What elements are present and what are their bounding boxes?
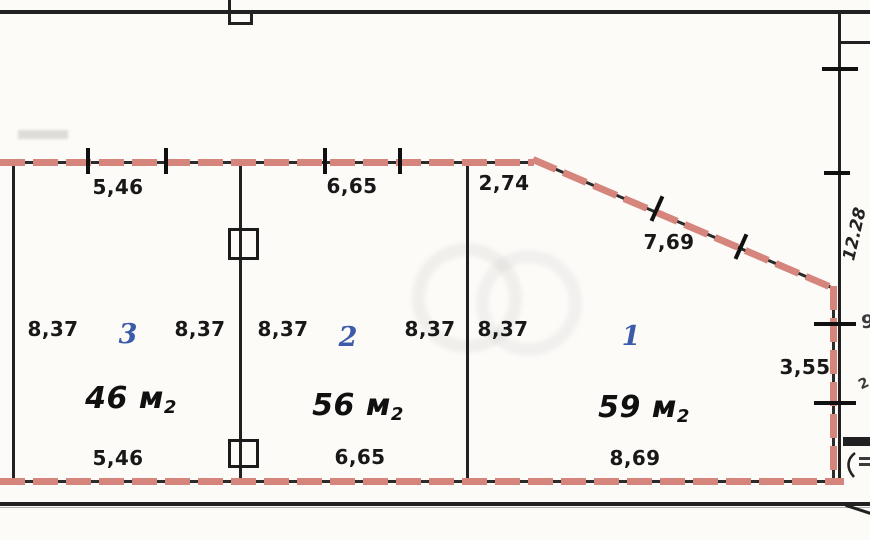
dim-right-height: 12.28 bbox=[839, 206, 870, 263]
dim-width: 8,37 bbox=[405, 317, 456, 341]
bottom-outer-wall bbox=[0, 502, 870, 506]
dim-bottom: 5,46 bbox=[93, 446, 144, 470]
room-1-area: 59 м2 bbox=[598, 390, 690, 427]
dim-width: 8,37 bbox=[28, 317, 79, 341]
room-2-area: 56 м2 bbox=[312, 388, 404, 425]
door-swing-icon bbox=[844, 451, 860, 479]
dim-top-left: 5,46 bbox=[93, 175, 144, 199]
tick bbox=[323, 148, 327, 174]
right-stub-wall bbox=[840, 41, 870, 44]
floor-plan: 5,46 6,65 2,74 7,69 8,37 8,37 8,37 8,37 … bbox=[0, 0, 870, 540]
tick bbox=[164, 148, 168, 174]
dim-right-segment: 3,55 bbox=[780, 355, 831, 379]
room-2-number: 2 bbox=[339, 322, 358, 353]
room-3-number: 3 bbox=[119, 319, 138, 350]
dim-top-corner: 2,74 bbox=[479, 171, 530, 195]
left-boundary-line bbox=[12, 162, 15, 480]
dim-bottom: 8,69 bbox=[610, 446, 661, 470]
edge-fragment-upper: 9 bbox=[861, 311, 870, 333]
red-wall-right bbox=[829, 286, 838, 481]
room-1-number: 1 bbox=[622, 321, 641, 352]
top-outer-wall bbox=[0, 10, 870, 14]
right-boundary-line bbox=[838, 10, 841, 483]
dim-width: 8,37 bbox=[175, 317, 226, 341]
edge-hatch-bar bbox=[843, 437, 870, 446]
dim-diagonal: 7,69 bbox=[644, 230, 695, 254]
tick bbox=[824, 171, 850, 175]
tick bbox=[814, 401, 856, 405]
red-wall-top bbox=[0, 158, 534, 167]
tiny-annotation bbox=[859, 457, 870, 460]
red-wall-bottom bbox=[0, 477, 844, 486]
bottom-outer-wall-echo bbox=[0, 507, 870, 508]
tick bbox=[398, 148, 402, 174]
tick bbox=[86, 148, 90, 174]
tick bbox=[814, 322, 856, 326]
edge-fragment-lower: 2 bbox=[856, 375, 870, 394]
partition-3-2 bbox=[239, 162, 242, 480]
bottom-right-stub bbox=[845, 504, 870, 515]
top-notch-right bbox=[250, 13, 253, 25]
dim-width: 8,37 bbox=[478, 317, 529, 341]
dim-top-middle: 6,65 bbox=[327, 174, 378, 198]
room-3-area: 46 м2 bbox=[85, 381, 177, 418]
wall-post bbox=[228, 228, 259, 260]
red-wall-diagonal bbox=[531, 155, 836, 292]
wall-post bbox=[228, 439, 259, 468]
tick bbox=[822, 67, 858, 71]
dim-bottom: 6,65 bbox=[335, 445, 386, 469]
dim-width: 8,37 bbox=[258, 317, 309, 341]
scan-smudge bbox=[18, 130, 68, 139]
tiny-annotation bbox=[859, 463, 870, 466]
partition-2-1 bbox=[466, 162, 469, 480]
